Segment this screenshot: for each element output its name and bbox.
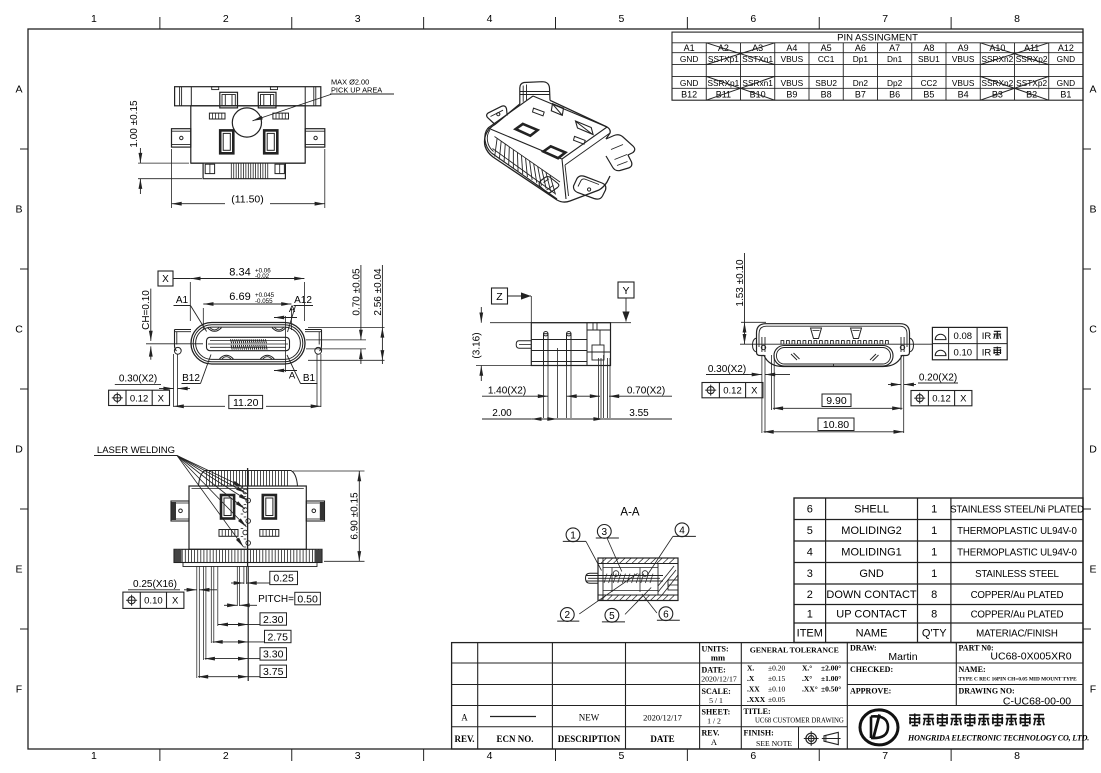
svg-text:B12: B12 [182,373,200,384]
svg-text:PIN ASSINGMENT: PIN ASSINGMENT [837,33,918,44]
svg-text:THERMOPLASTIC UL94V-0: THERMOPLASTIC UL94V-0 [957,548,1077,559]
svg-text:0.12: 0.12 [130,393,149,404]
svg-text:3: 3 [602,527,608,538]
svg-text:±0.20: ±0.20 [768,664,785,673]
svg-text:8: 8 [1014,13,1020,25]
svg-text:0.20(X2): 0.20(X2) [919,372,957,383]
svg-text:UC68-0X005XR0: UC68-0X005XR0 [990,651,1071,663]
svg-text:X.°: X.° [802,664,812,673]
svg-text:9.90: 9.90 [826,395,847,407]
svg-text:PART N0:: PART N0: [959,644,994,653]
svg-text:5: 5 [619,13,625,25]
svg-text:Dn2: Dn2 [853,78,869,88]
svg-text:IR: IR [982,347,992,358]
svg-text:APPROVE:: APPROVE: [850,687,891,696]
svg-text:.XXX: .XXX [747,695,766,704]
svg-text:C: C [1089,324,1097,336]
svg-text:NAME: NAME [856,628,888,640]
svg-text:1: 1 [931,504,937,516]
svg-text:B7: B7 [855,90,866,100]
svg-text:A: A [711,737,718,747]
svg-text:B8: B8 [821,90,832,100]
svg-text:TITLE:: TITLE: [744,707,771,716]
svg-text:FINISH:: FINISH: [744,729,774,738]
svg-text:MOLIDING1: MOLIDING1 [841,547,902,559]
svg-text:2020/12/17: 2020/12/17 [643,713,682,723]
svg-text:2.75: 2.75 [267,631,288,643]
svg-text:B: B [1089,204,1096,216]
svg-text:A12: A12 [294,295,312,306]
svg-text:X: X [158,393,165,404]
svg-text:4: 4 [487,750,493,762]
svg-text:1: 1 [931,547,937,559]
svg-text:GENERAL TOLERANCE: GENERAL TOLERANCE [750,646,839,655]
svg-text:SHEET:: SHEET: [702,708,731,717]
svg-text:E: E [1089,564,1096,576]
svg-text:B12: B12 [681,90,697,100]
svg-text:7: 7 [882,750,888,762]
svg-text:GND: GND [1057,78,1075,88]
svg-text:B4: B4 [958,90,969,100]
svg-text:3.55: 3.55 [629,408,649,419]
svg-text:A1: A1 [176,295,189,306]
svg-text:3: 3 [807,568,813,580]
svg-text:0.10: 0.10 [144,596,163,607]
svg-text:NAME:: NAME: [959,665,986,674]
svg-text:1: 1 [807,609,813,621]
svg-text:Dp1: Dp1 [853,54,869,64]
svg-text:CHECKED:: CHECKED: [850,665,893,674]
svg-text:1: 1 [931,568,937,580]
svg-text:1.53 ±0.10: 1.53 ±0.10 [735,259,746,307]
svg-text:A: A [289,371,296,382]
svg-text:(3.16): (3.16) [472,332,483,358]
svg-text:A9: A9 [958,43,969,53]
svg-text:Dn1: Dn1 [887,54,903,64]
svg-text:GND: GND [680,78,698,88]
svg-text:10.80: 10.80 [823,419,849,431]
svg-text:TYPE C REC 16PIN CH=0.05 MID M: TYPE C REC 16PIN CH=0.05 MID MOUNT TYPE [959,677,1078,683]
svg-text:IR: IR [982,331,992,342]
svg-text:A6: A6 [855,43,866,53]
svg-text:DRAW:: DRAW: [850,644,877,653]
svg-text:MATERIAC/FINISH: MATERIAC/FINISH [976,629,1058,640]
svg-text:4: 4 [487,13,493,25]
svg-text:-0.02: -0.02 [255,273,270,280]
svg-text:E: E [15,564,22,576]
svg-text:C: C [15,324,23,336]
svg-text:-0.055: -0.055 [255,298,273,305]
svg-text:B5: B5 [923,90,934,100]
svg-text:5: 5 [619,750,625,762]
svg-text:ECN NO.: ECN NO. [496,734,533,744]
svg-text:UC68 CUSTOMER DRAWING: UC68 CUSTOMER DRAWING [755,718,844,725]
svg-text:3.30: 3.30 [263,649,284,661]
svg-text:1: 1 [91,13,97,25]
svg-text:Martin: Martin [888,651,917,663]
svg-text:8: 8 [931,609,937,621]
svg-text:mm: mm [711,653,725,663]
svg-text:DESCRIPTION: DESCRIPTION [558,734,621,744]
svg-text:6.69: 6.69 [229,291,250,303]
svg-text:B6: B6 [889,90,900,100]
svg-text:0.12: 0.12 [932,394,951,405]
svg-text:A-A: A-A [620,507,640,519]
svg-text:1: 1 [570,530,576,541]
svg-text:GND: GND [859,568,884,580]
svg-text:1: 1 [91,750,97,762]
svg-text:SCALE:: SCALE: [702,687,731,696]
svg-text:A: A [1089,84,1096,96]
svg-text:0.10: 0.10 [954,347,973,358]
svg-text:±2.00°: ±2.00° [821,664,841,673]
svg-text:X: X [960,394,967,405]
svg-text:3.75: 3.75 [263,666,284,678]
svg-text:VBUS: VBUS [781,54,804,64]
svg-text:5: 5 [807,525,813,537]
svg-text:LASER WELDING: LASER WELDING [97,445,175,456]
svg-text:±0.05: ±0.05 [768,695,785,704]
svg-text:3: 3 [355,13,361,25]
svg-text:MOLIDING2: MOLIDING2 [841,525,902,537]
svg-text:.X°: .X° [802,674,812,683]
svg-text:1 / 2: 1 / 2 [707,717,721,726]
svg-text:4: 4 [807,547,813,559]
svg-text:8: 8 [931,589,937,601]
svg-text:B1: B1 [1060,90,1071,100]
svg-text:GND: GND [680,54,698,64]
svg-text:0.30(X2): 0.30(X2) [708,364,746,375]
svg-text:NEW: NEW [579,713,600,723]
svg-text:STAINLESS STEEL/Ni PLATED: STAINLESS STEEL/Ni PLATED [950,505,1084,516]
svg-text:0.30(X2): 0.30(X2) [119,374,157,385]
svg-text:Dp2: Dp2 [887,78,903,88]
svg-text:PICK UP AREA: PICK UP AREA [331,86,382,95]
svg-text:SBU1: SBU1 [918,54,940,64]
svg-text:THERMOPLASTIC UL94V-0: THERMOPLASTIC UL94V-0 [957,526,1077,537]
svg-text:DATE:: DATE: [702,666,726,675]
svg-text:REV.: REV. [454,734,474,744]
svg-text:0.08: 0.08 [954,331,973,342]
svg-text:UP CONTACT: UP CONTACT [836,609,907,621]
svg-text:X.: X. [747,664,754,673]
svg-text:ITEM: ITEM [797,628,823,640]
svg-text:2.00: 2.00 [492,408,512,419]
svg-text:SHELL: SHELL [854,504,889,516]
svg-text:Y: Y [622,285,629,297]
svg-text:8.34: 8.34 [229,266,250,278]
svg-text:4: 4 [679,525,685,536]
svg-text:3: 3 [355,750,361,762]
svg-text:A: A [15,84,22,96]
svg-text:.XX°: .XX° [802,685,818,694]
svg-text:1.00 ±0.15: 1.00 ±0.15 [129,100,140,148]
svg-text:6: 6 [807,504,813,516]
svg-text:0.25: 0.25 [273,573,294,585]
svg-text:B1: B1 [303,373,316,384]
svg-text:A: A [461,713,468,723]
svg-text:Q'TY: Q'TY [922,628,947,640]
svg-text:DATE: DATE [650,734,674,744]
svg-text:CC1: CC1 [818,54,835,64]
svg-text:C-UC68-00-00: C-UC68-00-00 [1003,696,1071,708]
svg-text:7: 7 [882,13,888,25]
svg-text:SBU2: SBU2 [815,78,837,88]
svg-text:1: 1 [931,525,937,537]
svg-text:.X: .X [747,674,755,683]
svg-text:0.70(X2): 0.70(X2) [627,386,665,397]
svg-text:±0.10: ±0.10 [768,685,785,694]
svg-text:HONGRIDA ELECTRONIC TECHNOLOGY: HONGRIDA ELECTRONIC TECHNOLOGY CO, LTD. [907,734,1089,743]
svg-text:5 / 1: 5 / 1 [709,696,723,705]
svg-text:VBUS: VBUS [781,78,804,88]
svg-text:X: X [751,386,758,397]
svg-text:B: B [15,204,22,216]
svg-text:2: 2 [565,610,571,621]
svg-text:D: D [1089,444,1097,456]
svg-text:F: F [1090,684,1096,696]
svg-text:DRAWING NO:: DRAWING NO: [959,687,1015,696]
svg-text:(11.50): (11.50) [231,194,264,206]
svg-text:D: D [15,444,23,456]
svg-text:8: 8 [1014,750,1020,762]
svg-text:PITCH=: PITCH= [258,594,294,605]
svg-text:GND: GND [1057,54,1075,64]
svg-text:COPPER/Au PLATED: COPPER/Au PLATED [971,590,1064,601]
svg-text:±0.50°: ±0.50° [821,685,841,694]
svg-text:A8: A8 [923,43,934,53]
svg-text:2020/12/17: 2020/12/17 [701,675,737,684]
svg-text:A4: A4 [786,43,797,53]
svg-text:6: 6 [750,750,756,762]
svg-text:Z: Z [496,291,503,303]
svg-text:11.20: 11.20 [233,397,259,409]
svg-text:X: X [162,274,169,285]
svg-text:2.30: 2.30 [263,614,284,626]
svg-text:VBUS: VBUS [952,54,975,64]
svg-text:A: A [289,304,296,315]
svg-text:X: X [172,596,179,607]
svg-text:DOWN CONTACT: DOWN CONTACT [826,589,917,601]
svg-text:2.56 ±0.04: 2.56 ±0.04 [373,268,384,316]
svg-text:F: F [16,684,22,696]
svg-text:±1.00°: ±1.00° [821,674,841,683]
svg-text:COPPER/Au PLATED: COPPER/Au PLATED [971,610,1064,621]
svg-text:2: 2 [223,750,229,762]
svg-text:A1: A1 [684,43,695,53]
svg-text:0.25(X16): 0.25(X16) [133,579,177,590]
svg-text:2: 2 [223,13,229,25]
svg-text:VBUS: VBUS [952,78,975,88]
svg-text:6: 6 [750,13,756,25]
svg-text:6: 6 [663,609,669,620]
svg-text:CC2: CC2 [921,78,938,88]
svg-text:0.70 ±0.05: 0.70 ±0.05 [351,268,362,316]
svg-text:A5: A5 [821,43,832,53]
svg-text:.XX: .XX [747,685,760,694]
svg-text:6.90 ±0.15: 6.90 ±0.15 [350,492,361,540]
svg-text:STAINLESS STEEL: STAINLESS STEEL [975,569,1059,580]
svg-text:B9: B9 [786,90,797,100]
svg-text:1.40(X2): 1.40(X2) [488,386,526,397]
svg-text:2: 2 [807,589,813,601]
svg-text:A12: A12 [1058,43,1074,53]
svg-text:SEE NOTE: SEE NOTE [756,739,792,748]
svg-text:±0.15: ±0.15 [768,674,785,683]
svg-text:0.50: 0.50 [297,593,318,605]
svg-text:0.12: 0.12 [723,386,742,397]
svg-text:A7: A7 [889,43,900,53]
svg-text:5: 5 [609,611,615,622]
